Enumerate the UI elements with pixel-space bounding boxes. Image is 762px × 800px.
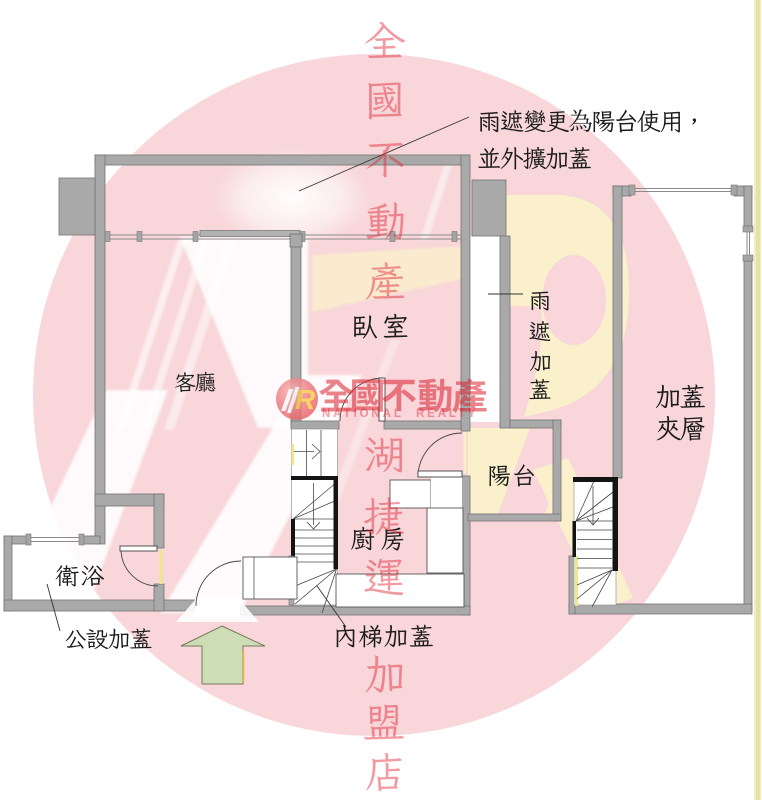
svg-text:NATIONAL REALTY: NATIONAL REALTY [322,408,479,420]
svg-text:R: R [295,384,316,415]
